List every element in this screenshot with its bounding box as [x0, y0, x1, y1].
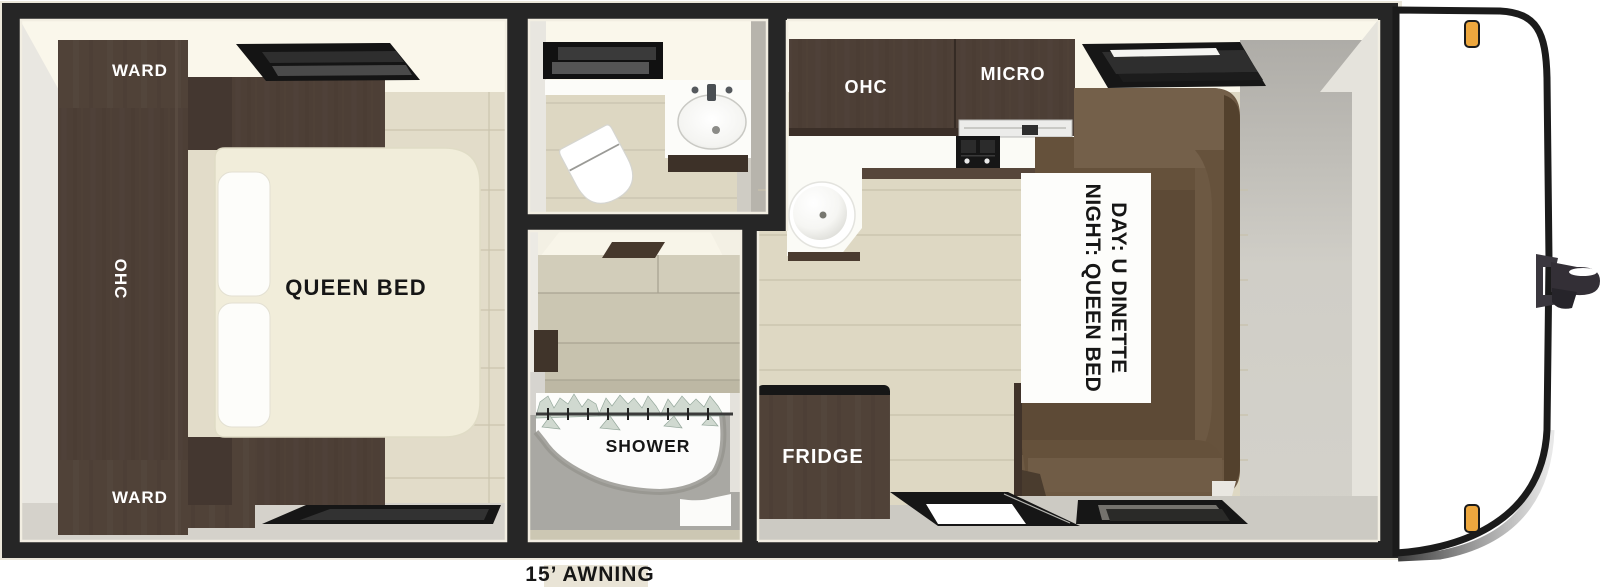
svg-text:OHC: OHC — [111, 259, 130, 300]
svg-text:OHC: OHC — [845, 77, 888, 97]
svg-text:NIGHT: QUEEN BED: NIGHT: QUEEN BED — [1081, 184, 1104, 393]
svg-text:DAY: U DINETTE: DAY: U DINETTE — [1107, 202, 1130, 374]
svg-text:15’ AWNING: 15’ AWNING — [525, 563, 654, 586]
svg-text:MICRO: MICRO — [981, 64, 1046, 84]
svg-text:QUEEN BED: QUEEN BED — [285, 275, 427, 300]
svg-text:WARD: WARD — [112, 61, 168, 80]
svg-text:WARD: WARD — [112, 488, 168, 507]
svg-text:SHOWER: SHOWER — [606, 436, 691, 456]
svg-text:FRIDGE: FRIDGE — [782, 446, 864, 468]
